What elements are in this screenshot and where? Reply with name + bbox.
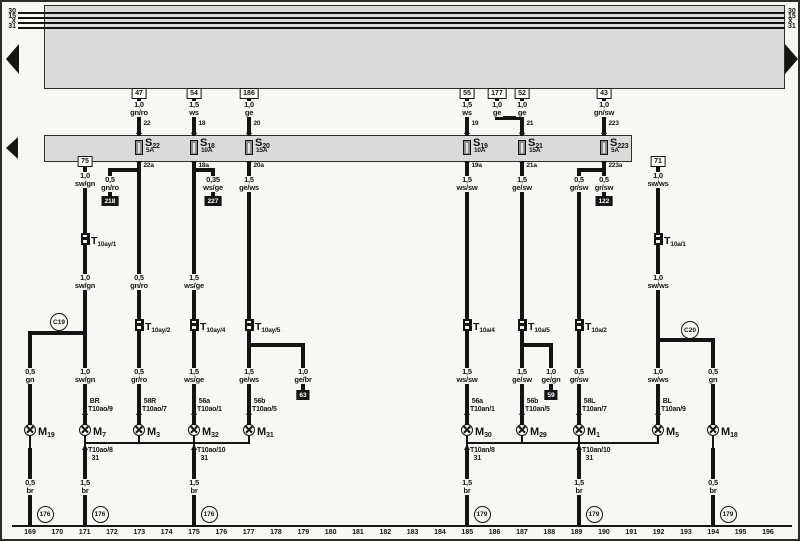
fuse-pin-arrow-up bbox=[246, 128, 252, 134]
pin-arrow-up bbox=[576, 444, 582, 450]
track-number: 193 bbox=[676, 529, 696, 536]
connector-symbol-slot bbox=[192, 326, 196, 328]
wire-label: 1,0 sw/gn bbox=[74, 368, 96, 384]
wire-label: 1,5 br bbox=[573, 479, 585, 495]
track-number: 177 bbox=[239, 529, 259, 536]
track-number: 170 bbox=[47, 529, 67, 536]
lamp-label: M7 bbox=[93, 422, 106, 440]
track-number: 183 bbox=[403, 529, 423, 536]
connector-symbol-slot bbox=[247, 326, 251, 328]
connector-symbol-slot bbox=[137, 321, 141, 323]
track-number: 184 bbox=[430, 529, 450, 536]
wire-label: 1,5 ge/ws bbox=[238, 176, 260, 192]
bus-label: 31 bbox=[3, 23, 16, 30]
track-number: 176 bbox=[211, 529, 231, 536]
fuse-amps: 5A bbox=[146, 147, 154, 154]
pin-label: 56a T10ao/1 bbox=[197, 398, 222, 413]
connector-symbol-slot bbox=[656, 240, 660, 242]
fuse-label-sub: 223 bbox=[617, 143, 628, 150]
pin-label: 56a T10an/1 bbox=[470, 398, 495, 413]
bus-label: 31 bbox=[788, 23, 796, 30]
fuse-symbol-slot bbox=[466, 143, 468, 153]
wire-label: 0,5 gr/ro bbox=[130, 368, 148, 384]
junction-circle: C20 bbox=[681, 321, 699, 339]
wire-label: 1,5 ge/sw bbox=[511, 368, 533, 384]
terminal-box: 177 bbox=[488, 88, 507, 99]
wire-thin bbox=[85, 442, 250, 444]
wire-label: 1,5 ws bbox=[188, 101, 200, 117]
track-number: 194 bbox=[703, 529, 723, 536]
fuse-pin-arrow-down bbox=[464, 161, 470, 167]
lamp-label: M31 bbox=[257, 422, 274, 440]
terminal-box: 71 bbox=[651, 156, 666, 167]
track-number: 192 bbox=[649, 529, 669, 536]
pin-label: T10an/10 31 bbox=[582, 447, 610, 462]
pin-arrow-up bbox=[191, 409, 197, 415]
wiring-diagram: 30301515XX31311,0 gn/ro1,5 ws1,0 ge1,5 w… bbox=[0, 0, 800, 541]
wire-label: 1,5 br bbox=[188, 479, 200, 495]
wire bbox=[656, 338, 715, 342]
connector-symbol-slot bbox=[577, 321, 581, 323]
wire-thin bbox=[712, 435, 714, 450]
connector-label-sub: 10ay/5 bbox=[261, 327, 280, 334]
terminal-box: 43 bbox=[597, 88, 612, 99]
wire-label: 0,5 gn/ro bbox=[100, 176, 120, 192]
fuse-amps: 10A bbox=[474, 147, 485, 154]
ground-circle: 176 bbox=[37, 506, 54, 523]
track-number: 173 bbox=[129, 529, 149, 536]
fuse-pin-number: 19 bbox=[472, 120, 479, 127]
pin-arrow-up bbox=[191, 444, 197, 450]
connector-symbol-slot bbox=[577, 326, 581, 328]
pin-arrow-up bbox=[246, 409, 252, 415]
track-number: 195 bbox=[731, 529, 751, 536]
fuse-amps: 15A bbox=[256, 147, 267, 154]
fuse-pin-number: 20a bbox=[254, 162, 264, 169]
track-number: 185 bbox=[457, 529, 477, 536]
wire-label: 1,5 ws/ge bbox=[183, 368, 205, 384]
lamp-label-sub: 7 bbox=[102, 432, 106, 439]
track-number: 169 bbox=[20, 529, 40, 536]
fuse-panel-band bbox=[44, 135, 632, 162]
continuation-arrow bbox=[6, 137, 18, 159]
pin-label: 56b T10ao/5 bbox=[252, 398, 277, 413]
track-number: 188 bbox=[539, 529, 559, 536]
fuse-pin-number: 21 bbox=[527, 120, 534, 127]
junction-circle: C19 bbox=[50, 313, 68, 331]
lamp-label-prefix: M bbox=[257, 426, 266, 438]
wire-label: 1,5 ws/ge bbox=[183, 274, 205, 290]
pin-label: T10an/8 31 bbox=[470, 447, 495, 462]
track-ref-box: 227 bbox=[205, 196, 222, 206]
pin-label: 56b T10an/5 bbox=[525, 398, 550, 413]
continuation-arrow bbox=[6, 44, 19, 74]
bus-line bbox=[18, 22, 785, 24]
wire-label: 0,5 gr/sw bbox=[569, 176, 590, 192]
wire bbox=[108, 168, 141, 172]
wire bbox=[28, 331, 87, 335]
wire-thin bbox=[467, 442, 659, 444]
track-number: 178 bbox=[266, 529, 286, 536]
fuse-pin-number: 21a bbox=[527, 162, 537, 169]
connector-symbol-slot bbox=[192, 321, 196, 323]
terminal-box: 52 bbox=[515, 88, 530, 99]
pin-label: T10ao/8 31 bbox=[88, 447, 113, 462]
fuse-pin-arrow-down bbox=[191, 161, 197, 167]
lamp-label-prefix: M bbox=[666, 426, 675, 438]
fuse-symbol-slot bbox=[521, 143, 523, 153]
track-number: 175 bbox=[184, 529, 204, 536]
bus-line bbox=[18, 27, 785, 29]
lamp-label-prefix: M bbox=[38, 426, 47, 438]
connector-label-sub: 10a/4 bbox=[479, 327, 494, 334]
wire-label: 1,0 sw/ws bbox=[646, 368, 669, 384]
lamp-label: M3 bbox=[147, 422, 160, 440]
lamp-label-sub: 1 bbox=[596, 432, 600, 439]
pin-arrow-up bbox=[464, 444, 470, 450]
wire-label: 1,5 ge/sw bbox=[511, 176, 533, 192]
pin-arrow-up bbox=[655, 409, 661, 415]
track-number: 187 bbox=[512, 529, 532, 536]
track-number: 189 bbox=[567, 529, 587, 536]
track-number: 179 bbox=[293, 529, 313, 536]
connector-symbol-slot bbox=[83, 235, 87, 237]
wire-label: 0,5 gn/ro bbox=[129, 274, 149, 290]
wire-label: 1,5 ws/sw bbox=[455, 176, 478, 192]
fuse-pin-arrow-down bbox=[519, 161, 525, 167]
connector-symbol-slot bbox=[656, 235, 660, 237]
track-number: 186 bbox=[485, 529, 505, 536]
fuse-symbol-slot bbox=[138, 143, 140, 153]
terminal-box: 54 bbox=[187, 88, 202, 99]
fuse-pin-arrow-down bbox=[136, 161, 142, 167]
pin-arrow-up bbox=[576, 409, 582, 415]
wire-label: 1,5 ge/ws bbox=[238, 368, 260, 384]
lamp-label-prefix: M bbox=[202, 426, 211, 438]
lamp-label: M5 bbox=[666, 422, 679, 440]
wire-label: 1,0 sw/gn bbox=[74, 274, 96, 290]
wire-label: 0,5 gn bbox=[707, 368, 719, 384]
wire-label: 1,0 ge bbox=[516, 101, 528, 117]
pin-label: 58R T10ao/7 bbox=[142, 398, 167, 413]
fuse-pin-arrow-down bbox=[601, 161, 607, 167]
terminal-box: 55 bbox=[460, 88, 475, 99]
lamp-label-prefix: M bbox=[530, 426, 539, 438]
connector-symbol-slot bbox=[520, 321, 524, 323]
connector-label-sub: 10ay/4 bbox=[206, 327, 225, 334]
lamp-label-sub: 29 bbox=[539, 432, 546, 439]
lamp-label-sub: 31 bbox=[266, 432, 273, 439]
track-number: 174 bbox=[157, 529, 177, 536]
connector-label-sub: 10ay/1 bbox=[97, 241, 116, 248]
bus-line bbox=[18, 12, 785, 14]
lamp-label-prefix: M bbox=[587, 426, 596, 438]
connector-symbol-slot bbox=[137, 326, 141, 328]
wire-label: 0,5 br bbox=[707, 479, 719, 495]
pin-arrow-up bbox=[82, 409, 88, 415]
track-number: 171 bbox=[75, 529, 95, 536]
wire-label: 1,0 ge bbox=[243, 101, 255, 117]
fuse-pin-arrow-down bbox=[246, 161, 252, 167]
connector-label: T10ay/1 bbox=[91, 231, 116, 249]
lamp-label-sub: 3 bbox=[156, 432, 160, 439]
track-ref-box: 63 bbox=[296, 390, 309, 400]
lamp-label: M19 bbox=[38, 422, 55, 440]
wire-label: 0,5 br bbox=[24, 479, 36, 495]
lamp-label-sub: 18 bbox=[730, 432, 737, 439]
wire-label: 1,5 ws bbox=[461, 101, 473, 117]
connector-label: T10a/4 bbox=[473, 317, 495, 335]
connector-symbol-slot bbox=[520, 326, 524, 328]
fuse-symbol-slot bbox=[603, 143, 605, 153]
track-number: 181 bbox=[348, 529, 368, 536]
fuse-pin-number: 22 bbox=[144, 120, 151, 127]
wire-label: 0,5 gn bbox=[24, 368, 36, 384]
lamp-label-sub: 30 bbox=[484, 432, 491, 439]
wire-label: 1,0 sw/ws bbox=[646, 172, 669, 188]
wire-label: 1,0 sw/gn bbox=[74, 172, 96, 188]
track-number: 172 bbox=[102, 529, 122, 536]
track-ref-box: 122 bbox=[596, 196, 613, 206]
bus-line bbox=[18, 17, 785, 19]
lamp-label: M1 bbox=[587, 422, 600, 440]
pin-label: BL T10an/9 bbox=[661, 398, 686, 413]
connector-label: T10a/2 bbox=[585, 317, 607, 335]
track-ref-box: 218 bbox=[102, 196, 119, 206]
fuse-pin-number: 223 bbox=[609, 120, 619, 127]
wire-label: 1,5 br bbox=[461, 479, 473, 495]
wire bbox=[192, 161, 196, 320]
wire-label: 1,5 br bbox=[79, 479, 91, 495]
wire bbox=[137, 161, 141, 320]
ground-circle: 176 bbox=[92, 506, 109, 523]
fuse-amps: 15A bbox=[529, 147, 540, 154]
wire-label: 0,5 gr/sw bbox=[569, 368, 590, 384]
connector-symbol-slot bbox=[247, 321, 251, 323]
wire-thin bbox=[29, 435, 31, 450]
fuse-pin-number: 19a bbox=[472, 162, 482, 169]
wire-label: 0,5 gr/sw bbox=[594, 176, 615, 192]
track-number: 182 bbox=[375, 529, 395, 536]
wire-label: 0,35 ws/ge bbox=[202, 176, 224, 192]
fuse-pin-number: 18a bbox=[199, 162, 209, 169]
pin-label: BR T10ao/9 bbox=[88, 398, 113, 413]
lamp-label: M29 bbox=[530, 422, 547, 440]
fuse-pin-number: 18 bbox=[199, 120, 206, 127]
wire-label: 1,0 ge/br bbox=[293, 368, 312, 384]
wire-label: 1,0 gn/sw bbox=[593, 101, 615, 117]
ground-circle: 176 bbox=[201, 506, 218, 523]
wire bbox=[577, 168, 606, 172]
pin-arrow-up bbox=[136, 409, 142, 415]
wire-thin bbox=[12, 525, 792, 527]
lamp-label-prefix: M bbox=[93, 426, 102, 438]
lamp-label: M30 bbox=[475, 422, 492, 440]
wire-label: 1,0 gn/ro bbox=[129, 101, 149, 117]
lamp-label-sub: 5 bbox=[675, 432, 679, 439]
lamp-label-prefix: M bbox=[147, 426, 156, 438]
fuse-symbol-slot bbox=[248, 143, 250, 153]
lamp-label-sub: 32 bbox=[211, 432, 218, 439]
lamp-label-prefix: M bbox=[475, 426, 484, 438]
wire-label: 1,0 ge bbox=[491, 101, 503, 117]
connector-symbol-slot bbox=[83, 240, 87, 242]
ground-circle: 179 bbox=[474, 506, 491, 523]
terminal-box: 186 bbox=[240, 88, 259, 99]
continuation-arrow bbox=[785, 44, 798, 74]
ground-circle: 179 bbox=[720, 506, 737, 523]
lamp-label-sub: 19 bbox=[47, 432, 54, 439]
connector-label-sub: 10a/1 bbox=[670, 241, 685, 248]
connector-label-sub: 10ay/2 bbox=[151, 327, 170, 334]
pin-arrow-up bbox=[464, 409, 470, 415]
terminal-box: 75 bbox=[78, 156, 93, 167]
wire-label: 1,0 sw/ws bbox=[646, 274, 669, 290]
fuse-amps: 5A bbox=[611, 147, 619, 154]
fuse-pin-number: 22a bbox=[144, 162, 154, 169]
connector-label: T10a/1 bbox=[664, 231, 686, 249]
wire-label: 1,0 ge/gn bbox=[541, 368, 562, 384]
connector-label: T10ay/2 bbox=[145, 317, 170, 335]
connector-label: T10a/5 bbox=[528, 317, 550, 335]
connector-label-sub: 10a/5 bbox=[534, 327, 549, 334]
fuse-pin-arrow-up bbox=[464, 128, 470, 134]
pin-label: T10ao/10 31 bbox=[197, 447, 225, 462]
wire bbox=[247, 343, 305, 347]
fuse-pin-arrow-up bbox=[136, 128, 142, 134]
pin-label: 58L T10an/7 bbox=[582, 398, 607, 413]
connector-symbol-slot bbox=[465, 321, 469, 323]
lamp-label: M32 bbox=[202, 422, 219, 440]
fuse-pin-arrow-up bbox=[519, 128, 525, 134]
connector-label: T10ay/4 bbox=[200, 317, 225, 335]
pin-arrow-up bbox=[82, 444, 88, 450]
track-number: 196 bbox=[758, 529, 778, 536]
track-number: 191 bbox=[621, 529, 641, 536]
fuse-pin-arrow-up bbox=[601, 128, 607, 134]
track-number: 190 bbox=[594, 529, 614, 536]
fuse-pin-arrow-up bbox=[191, 128, 197, 134]
terminal-box: 47 bbox=[132, 88, 147, 99]
connector-label: T10ay/5 bbox=[255, 317, 280, 335]
lamp-label-prefix: M bbox=[721, 426, 730, 438]
wire-label: 1,5 ws/sw bbox=[455, 368, 478, 384]
fuse-amps: 10A bbox=[201, 147, 212, 154]
lamp-label: M18 bbox=[721, 422, 738, 440]
connector-label-sub: 10a/2 bbox=[591, 327, 606, 334]
fuse-pin-number: 223a bbox=[609, 162, 623, 169]
fuse-pin-number: 20 bbox=[254, 120, 261, 127]
track-number: 180 bbox=[321, 529, 341, 536]
connector-symbol-slot bbox=[465, 326, 469, 328]
ground-circle: 179 bbox=[586, 506, 603, 523]
fuse-symbol-slot bbox=[193, 143, 195, 153]
pin-arrow-up bbox=[519, 409, 525, 415]
